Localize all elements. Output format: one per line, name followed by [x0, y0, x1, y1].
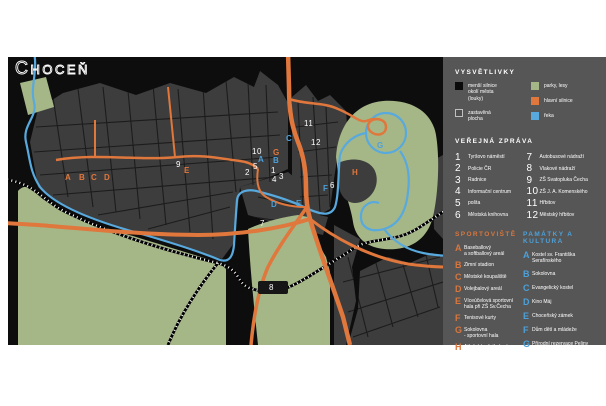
sports-item: H Atletický a fotbalový stadion na Parap… [455, 343, 523, 356]
sports-item-letter: A [455, 244, 464, 257]
sports-item: F Tenisové kurty [455, 314, 523, 322]
public-item-number: 8 [527, 163, 540, 174]
public-item-label: Autobusové nádraží [540, 154, 584, 160]
public-item: 3 Radnice [455, 174, 522, 186]
public-item: 12 Městský hřbitov [527, 209, 594, 221]
culture-item-letter: F [523, 326, 532, 334]
public-item-number: 1 [455, 152, 468, 163]
public-item-number: 4 [455, 186, 468, 197]
public-item-label: pošta [468, 200, 480, 206]
sports-item-label: Volejbalový areál [464, 285, 502, 293]
legend-swatch [531, 112, 539, 120]
public-item-number: 12 [527, 210, 540, 221]
public-item-number: 6 [455, 210, 468, 221]
legend-item: hlavní silnice [531, 97, 598, 105]
sports-item: D Volejbalový areál [455, 285, 523, 293]
public-item: 2 Policie ČR [455, 163, 522, 175]
map-title: Choceň [15, 58, 90, 79]
culture-item: A Kostel sv. Františka Serafínského [523, 251, 598, 264]
legend-swatch [455, 82, 463, 90]
public-item-label: ZŠ J. A. Komenského [540, 189, 588, 195]
map-culture-marker: C [286, 135, 292, 142]
sports-item: G Sokolovna - sportovní hala [455, 326, 523, 339]
legend-item: parky, lesy [531, 82, 598, 90]
sports-item-label: Atletický a fotbalový stadion na Paraple… [464, 343, 508, 356]
public-item-label: Tyršovo náměstí [468, 154, 505, 160]
sports-item-letter: E [455, 297, 464, 310]
public-item-label: Vlakové nádraží [540, 166, 576, 172]
sports-item-label: Tenisové kurty [464, 314, 496, 322]
culture-item-label: Kino Máj [532, 298, 551, 306]
public-item-number: 9 [527, 175, 540, 186]
sports-item-label: Sokolovna - sportovní hala [464, 326, 498, 339]
public-item-label: Informační centrum [468, 189, 511, 195]
sports-item: A Baseballový a softballový areál [455, 244, 523, 257]
map-culture-marker: D [271, 201, 277, 208]
sports-column: SPORTOVIŠTĚ A Baseballový a softballový … [455, 231, 523, 360]
map-culture-marker: A [258, 156, 264, 163]
legend-item: řeka [531, 112, 598, 120]
public-item: 6 Městská knihovna [455, 209, 522, 221]
culture-item-label: Kostel sv. Františka Serafínského [532, 251, 575, 264]
public-item-number: 5 [455, 198, 468, 209]
legend-swatch [531, 82, 539, 90]
public-item: 4 Informační centrum [455, 186, 522, 198]
sports-item-letter: F [455, 314, 464, 322]
public-item-number: 2 [455, 163, 468, 174]
culture-item: B Sokolovna [523, 270, 598, 278]
legend-item: menší silnice okolí města (louky) [455, 82, 531, 102]
culture-item-label: Sokolovna [532, 270, 555, 278]
map-culture-marker: F [323, 185, 328, 192]
culture-item-letter: C [523, 284, 532, 292]
culture-item-label: Dům dětí a mládeže [532, 326, 577, 334]
public-item: 8 Vlakové nádraží [527, 163, 594, 175]
culture-item-letter: G [523, 340, 532, 348]
public-item: 5 pošta [455, 198, 522, 210]
sports-item-letter: D [455, 285, 464, 293]
culture-item: F Dům dětí a mládeže [523, 326, 598, 334]
sports-item-letter: C [455, 273, 464, 281]
culture-item-letter: E [523, 312, 532, 320]
culture-item: G Přírodní rezervace Peliny [523, 340, 598, 348]
public-item-number: 7 [527, 152, 540, 163]
public-item: 9 ZŠ Svatopluka Čecha [527, 174, 594, 186]
culture-item-label: Přírodní rezervace Peliny [532, 340, 588, 348]
culture-item-letter: A [523, 251, 532, 264]
public-item: 11 Hřbitov [527, 198, 594, 210]
public-item-label: Městský hřbitov [540, 212, 575, 218]
culture-item: E Choceňský zámek [523, 312, 598, 320]
culture-list: A Kostel sv. Františka Serafínského B So… [523, 251, 598, 348]
public-item: 10 ZŠ J. A. Komenského [527, 186, 594, 198]
public-item: 1 Tyršovo náměstí [455, 151, 522, 163]
sports-list: A Baseballový a softballový areál B Zimn… [455, 244, 523, 356]
public-item-number: 10 [527, 186, 540, 197]
legend-column-right: parky, lesy hlavní silnice řeka [531, 82, 598, 129]
public-item-label: ZŠ Svatopluka Čecha [540, 177, 588, 183]
legend-label: menší silnice okolí města (louky) [468, 82, 497, 102]
sports-item-letter: H [455, 343, 464, 356]
public-item-number: 11 [527, 198, 540, 209]
legend-swatch [455, 109, 463, 117]
legend-item: zastavěná plocha [455, 109, 531, 123]
public-item-number: 3 [455, 175, 468, 186]
public-item-label: Policie ČR [468, 166, 491, 172]
legend-heading: VYSVĚTLIVKY [455, 69, 598, 76]
legend-label: zastavěná plocha [468, 109, 491, 123]
culture-item-letter: D [523, 298, 532, 306]
culture-item: C Evangelický kostel [523, 284, 598, 292]
sports-heading: SPORTOVIŠTĚ [455, 231, 523, 238]
legend-column-left: menší silnice okolí města (louky) zastav… [455, 82, 531, 129]
public-heading: VEŘEJNÁ ZPRÁVA [455, 138, 598, 145]
sports-item-label: Zimní stadion [464, 261, 494, 269]
sports-item-letter: B [455, 261, 464, 269]
culture-item: D Kino Máj [523, 298, 598, 306]
legend-label: hlavní silnice [544, 97, 573, 105]
map-culture-marker: B [273, 157, 279, 164]
facilities-section: SPORTOVIŠTĚ A Baseballový a softballový … [455, 231, 598, 360]
map-culture-markers: A B C D E F G [8, 57, 443, 345]
sports-item: B Zimní stadion [455, 261, 523, 269]
map-culture-marker: G [377, 142, 383, 149]
public-item-label: Městská knihovna [468, 212, 508, 218]
sports-item: C Městské koupaliště [455, 273, 523, 281]
map-culture-marker: E [296, 200, 301, 207]
poster: Choceň 1 2 3 4 5 6 7 8 9 10 [0, 0, 606, 406]
town-map: Choceň 1 2 3 4 5 6 7 8 9 10 [8, 57, 443, 345]
culture-item-letter: B [523, 270, 532, 278]
public-item-label: Radnice [468, 177, 486, 183]
public-item-label: Hřbitov [540, 200, 556, 206]
sports-item-label: Víceúčelová sportovní hala při ZŠ Sv.Čec… [464, 297, 513, 310]
legend-panel: VYSVĚTLIVKY menší silnice okolí města (l… [443, 57, 606, 345]
public-list: 1 Tyršovo náměstí 2 Policie ČR 3 Radnice [455, 151, 598, 221]
legend-label: řeka [544, 112, 554, 120]
legend-body: menší silnice okolí města (louky) zastav… [455, 82, 598, 129]
culture-column: PAMÁTKY A KULTURA A Kostel sv. Františka… [523, 231, 598, 360]
public-item: 7 Autobusové nádraží [527, 151, 594, 163]
legend-swatch [531, 97, 539, 105]
culture-item-label: Choceňský zámek [532, 312, 573, 320]
legend-label: parky, lesy [544, 82, 568, 90]
sports-item: E Víceúčelová sportovní hala při ZŠ Sv.Č… [455, 297, 523, 310]
culture-heading: PAMÁTKY A KULTURA [523, 231, 598, 245]
public-section: VEŘEJNÁ ZPRÁVA 1 Tyršovo náměstí 2 Polic… [455, 138, 598, 221]
sports-item-label: Městské koupaliště [464, 273, 507, 281]
sports-item-letter: G [455, 326, 464, 339]
sports-item-label: Baseballový a softballový areál [464, 244, 504, 257]
culture-item-label: Evangelický kostel [532, 284, 573, 292]
